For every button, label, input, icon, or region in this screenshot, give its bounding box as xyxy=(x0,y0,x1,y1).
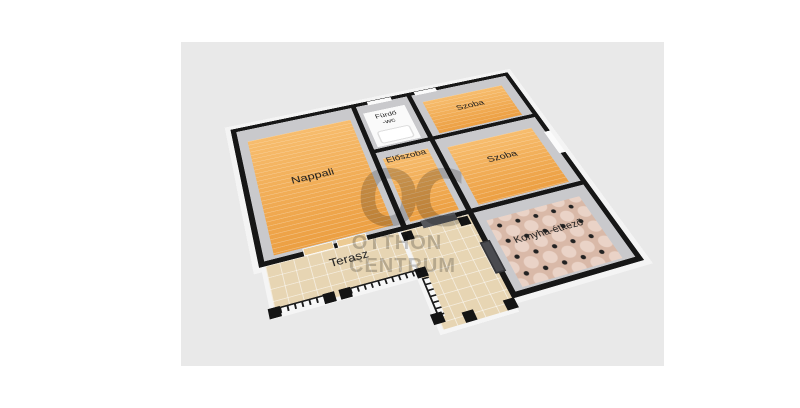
floorplan-3d-scene: Nappali Fürdő -wc Szoba Előszoba Szoba K… xyxy=(230,72,650,366)
floorplan-image: Nappali Fürdő -wc Szoba Előszoba Szoba K… xyxy=(181,42,664,366)
